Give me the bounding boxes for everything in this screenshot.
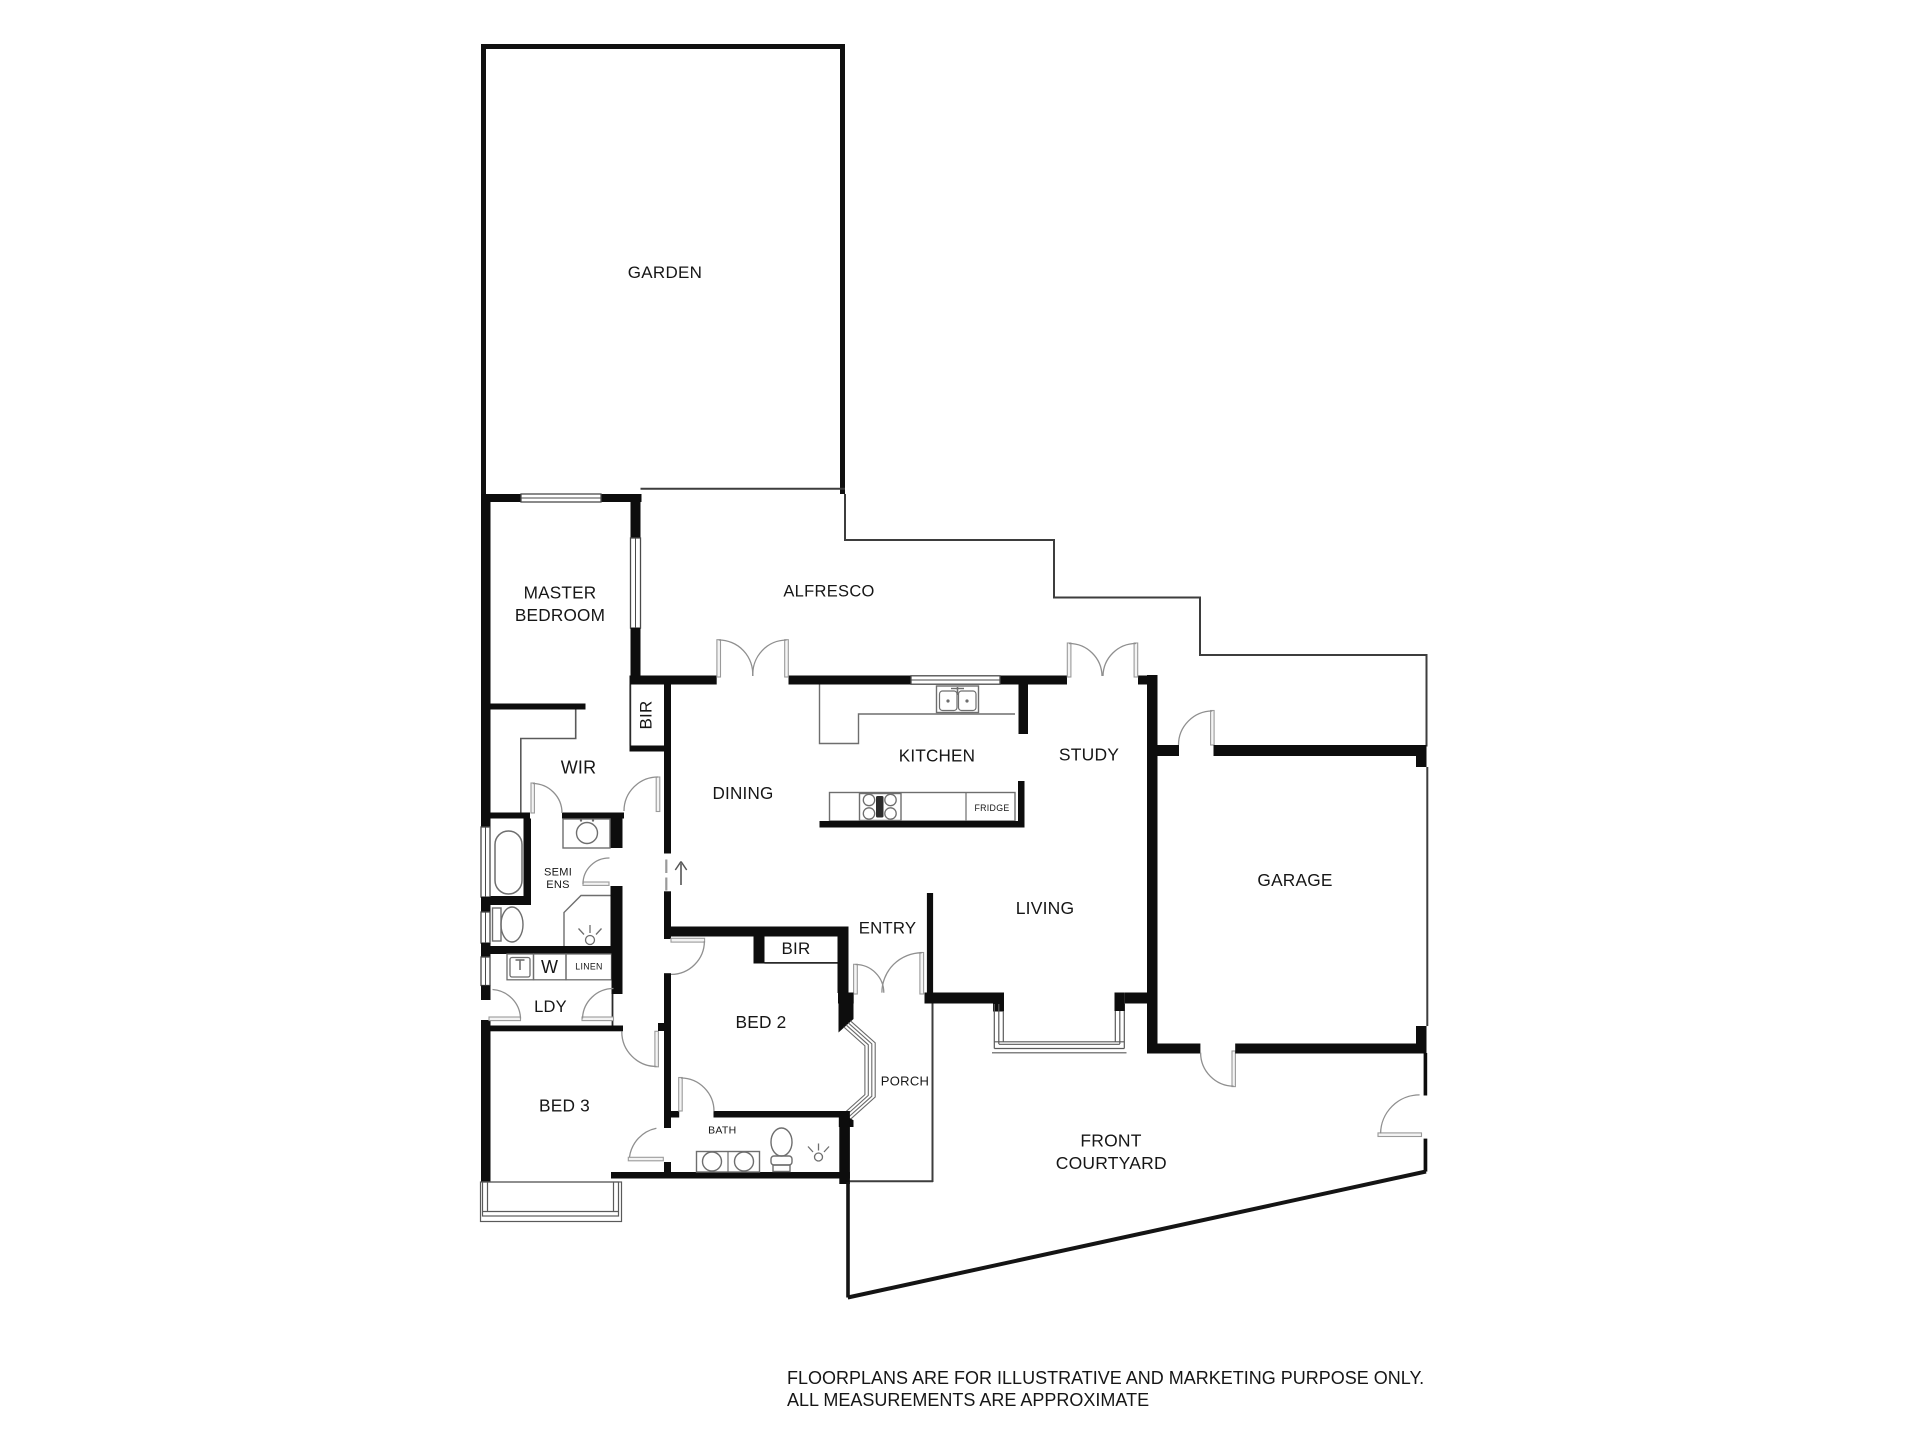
svg-text:STUDY: STUDY (1059, 745, 1119, 765)
svg-text:SEMI: SEMI (544, 867, 572, 879)
svg-text:ALL MEASUREMENTS ARE APPROXIMA: ALL MEASUREMENTS ARE APPROXIMATE (787, 1390, 1149, 1410)
svg-text:BIR: BIR (637, 701, 656, 730)
svg-text:KITCHEN: KITCHEN (899, 747, 975, 766)
svg-text:DINING: DINING (712, 784, 773, 803)
svg-text:GARAGE: GARAGE (1257, 870, 1332, 890)
svg-text:LIVING: LIVING (1016, 898, 1075, 918)
svg-text:BATH: BATH (708, 1125, 736, 1137)
svg-text:ENTRY: ENTRY (859, 919, 917, 938)
svg-text:BIR: BIR (782, 939, 811, 958)
svg-text:GARDEN: GARDEN (628, 263, 703, 282)
svg-text:FRIDGE: FRIDGE (974, 803, 1009, 813)
svg-text:W: W (541, 957, 558, 977)
svg-text:FRONT: FRONT (1080, 1130, 1141, 1150)
svg-text:WIR: WIR (561, 758, 597, 778)
svg-text:BEDROOM: BEDROOM (515, 605, 605, 625)
svg-text:ENS: ENS (546, 879, 570, 891)
svg-text:FLOORPLANS ARE FOR ILLUSTRATIV: FLOORPLANS ARE FOR ILLUSTRATIVE AND MARK… (787, 1368, 1424, 1388)
svg-text:LINEN: LINEN (575, 962, 602, 972)
svg-text:PORCH: PORCH (881, 1074, 929, 1089)
svg-text:BED 3: BED 3 (539, 1096, 590, 1116)
svg-text:MASTER: MASTER (524, 583, 597, 603)
svg-text:ALFRESCO: ALFRESCO (783, 583, 874, 601)
svg-text:LDY: LDY (534, 998, 567, 1016)
svg-text:COURTYARD: COURTYARD (1056, 1153, 1167, 1173)
svg-text:BED 2: BED 2 (736, 1012, 787, 1032)
